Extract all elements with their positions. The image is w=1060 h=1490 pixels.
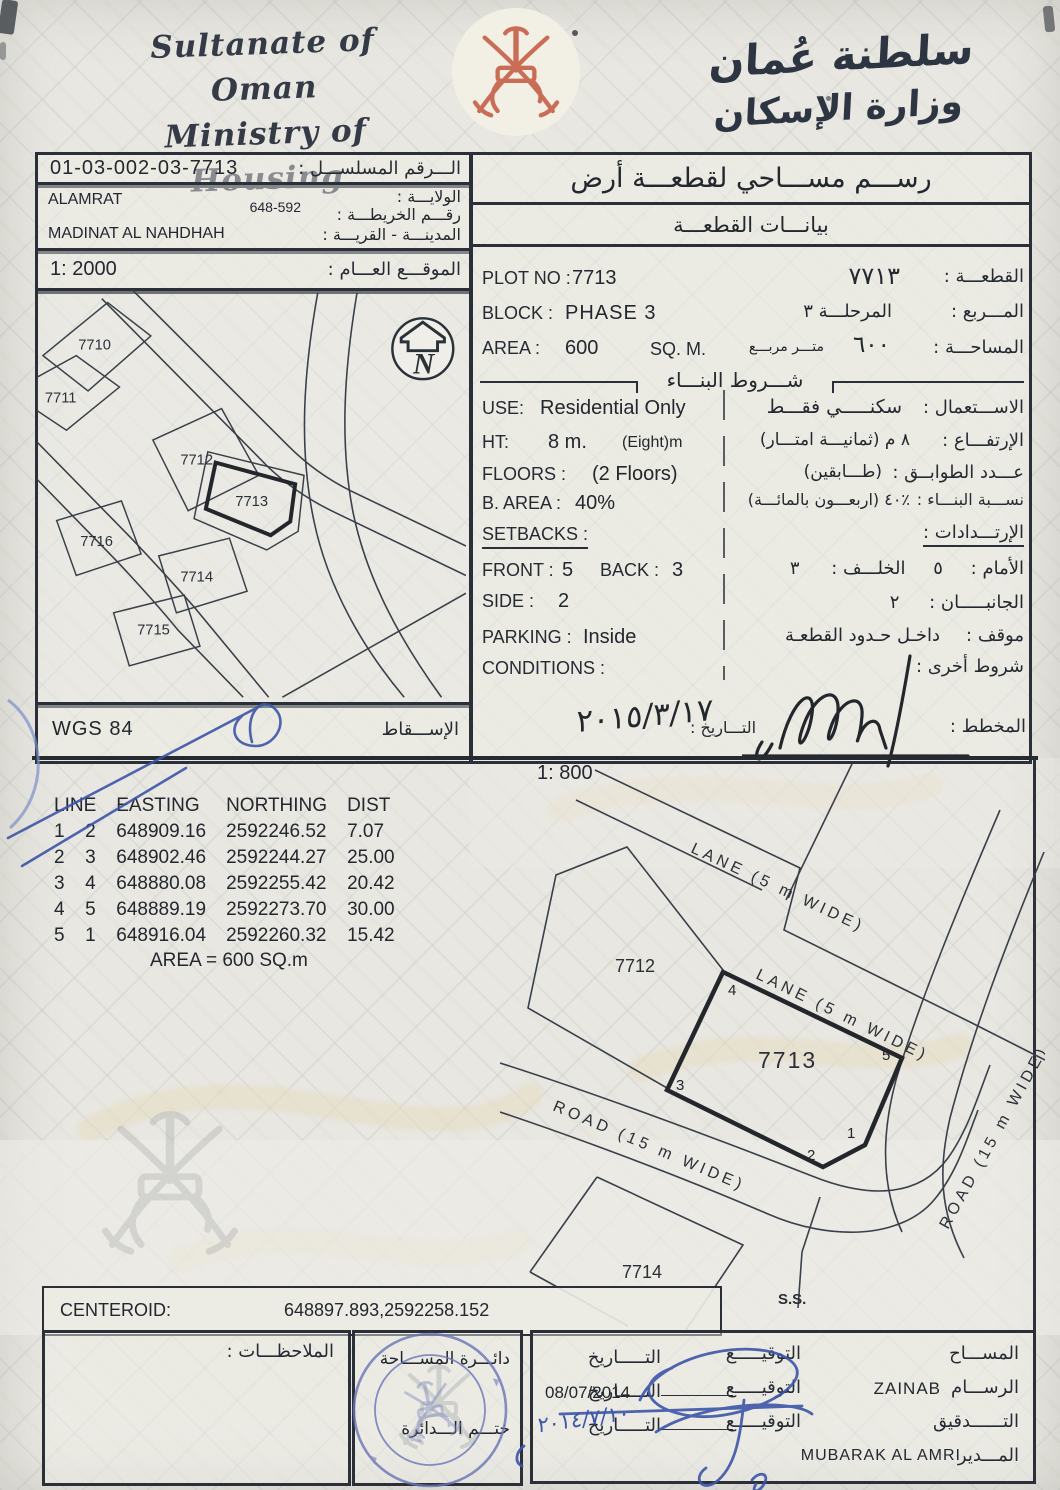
overview-plot-7715: 7715 (137, 622, 170, 638)
area-value: 600 (565, 337, 598, 360)
barea-label: B. AREA : (482, 493, 561, 514)
document-subtitle: بيانـــات القطعـــة (473, 205, 1029, 247)
overview-plot-7710: 7710 (78, 338, 111, 354)
barea-value: 40% (575, 492, 615, 515)
side-value-ar: ٢ (890, 592, 900, 613)
road-label-right: ROAD (15 m WIDE) (937, 1043, 1045, 1232)
serial-number-label: الـــرقم المسلســـل : (298, 158, 461, 179)
front-back-row-ar: الأمام : ٥ الخلـــف : ٣ (764, 558, 1024, 579)
floors-value-ar: (طـــابقين) (804, 462, 882, 482)
back-label-ar: الخلـــف : (831, 558, 905, 579)
setbacks-label: SETBACKS : (482, 524, 588, 549)
height-label: HT: (482, 432, 509, 453)
overview-plot-7714: 7714 (180, 569, 213, 585)
surveyor-sign-label: التوقيـــــع (726, 1343, 801, 1364)
map-number-value: 648-592 (250, 199, 301, 215)
map-number-label: رقـــم الخريطـــة : (337, 205, 461, 224)
overview-scale-label: الموقـــع العـــام : (328, 259, 461, 280)
side-label-ar: الجانبـــــان : (929, 592, 1024, 613)
audit-label: التــــــدقيق (933, 1411, 1019, 1432)
barea-value-ar: ٪٤٠ (اربعـــون بالمائـــة) (748, 490, 910, 509)
scan-artifact (0, 42, 6, 60)
coordinates-header-row: LINE EASTING NORTHING DIST (44, 793, 405, 819)
director-label: المـــدير (958, 1445, 1019, 1466)
centeroid-label: CENTEROID: (60, 1300, 171, 1321)
coord-row: 23648902.462592244.2725.00 (44, 845, 405, 871)
draftsman-sign-label: التوقيـــــع (726, 1377, 801, 1398)
floors-value: (2 Floors) (592, 463, 678, 486)
detail-site-plan: LANE (5 m WIDE) LANE (5 m WIDE) ROAD (15… (500, 760, 1045, 1330)
block-value: PHASE 3 (565, 302, 656, 325)
ss-label: S.S. (778, 1291, 806, 1308)
bracket-line-left (480, 381, 638, 383)
emblem-watermark (85, 1095, 255, 1265)
parking-label: PARKING : (482, 627, 572, 648)
draftsman-label: الرســـام (951, 1377, 1019, 1398)
signature-line (661, 1429, 733, 1430)
serial-number-value: 01-03-002-03-7713 (50, 157, 238, 180)
coordinates-table: LINE EASTING NORTHING DIST 12648909.1625… (44, 793, 405, 949)
scan-artifact (572, 30, 578, 36)
vertex-4: 4 (728, 982, 736, 999)
wilayat-label: الولايـــة : (397, 187, 461, 206)
overview-plot-7712: 7712 (180, 453, 213, 469)
area-label-ar: المساحـــة : (933, 337, 1024, 358)
coord-row: 45648889.192592273.7030.00 (44, 897, 405, 923)
ministry-header-arabic: سلطنة عُمان وزارة الإسكان (657, 18, 1022, 143)
notes-label: الملاحظـــات : (226, 1341, 334, 1362)
location-box: ALAMRAT الولايـــة : 648-592 رقـــم الخر… (35, 182, 472, 254)
height-value-ar: ٨ م (ثمانيـــة امتـــار) (760, 430, 910, 450)
lane-label-1: LANE (5 m WIDE) (688, 840, 867, 936)
detail-plot-7712: 7712 (615, 956, 655, 976)
setbacks-label-ar: الإرتـــدادات : (923, 522, 1024, 547)
overview-scale: 1: 2000 (50, 258, 117, 281)
overview-plot-7711: 7711 (45, 391, 77, 407)
north-arrow-icon: N (392, 318, 453, 380)
overview-map: 7710 7711 7712 7713 7716 7714 7715 N (37, 290, 466, 700)
planner-signature-scribble (742, 652, 982, 770)
front-value-ar: ٥ (933, 558, 943, 579)
area-label: AREA : (482, 338, 540, 359)
col-northing: NORTHING (216, 793, 337, 819)
town-label: المدينـــة - القريـــة : (322, 225, 461, 244)
coord-row: 34648880.082592255.4220.42 (44, 871, 405, 897)
front-label: FRONT : (482, 560, 554, 581)
use-value-ar: سكنـــــي فقـــط (767, 396, 902, 418)
draftsman-date-value: 08/07/2014 (545, 1383, 630, 1403)
projection-label: الإســـقاط (382, 719, 459, 740)
conditions-label: CONDITIONS : (482, 658, 605, 679)
front-value: 5 (562, 559, 573, 582)
surveyor-label: المســـاح (949, 1343, 1019, 1364)
town-value: MADINAT AL NAHDHAH (48, 225, 225, 243)
scan-artifact (826, 96, 831, 101)
surveyor-date-label: التـــــاريخ (588, 1347, 661, 1368)
plot-no-value: 7713 (572, 267, 617, 290)
block-value-ar: المرحلـــة ٣ (803, 301, 892, 322)
detail-labels: LANE (5 m WIDE) LANE (5 m WIDE) ROAD (15… (550, 840, 1045, 1308)
coord-row: 12648909.162592246.527.07 (44, 819, 405, 845)
detail-plot-7714: 7714 (622, 1262, 662, 1282)
use-value: Residential Only (540, 397, 686, 420)
side-row-ar: الجانبـــــان : ٢ (866, 592, 1024, 613)
plot-no-label-ar: القطعـــة : (944, 266, 1024, 287)
front-label-ar: الأمام : (971, 558, 1024, 579)
notes-box: الملاحظـــات : (42, 1330, 351, 1486)
height-label-ar: الإرتفـــاع : (942, 430, 1024, 451)
block-label-ar: المـــربع : (951, 301, 1024, 322)
north-letter: N (412, 348, 436, 380)
scanned-survey-document: Sultanate of Oman Ministry of Housing سل… (0, 0, 1060, 1490)
detail-plot-7713: 7713 (758, 1047, 817, 1073)
col-line: LINE (44, 793, 106, 819)
coord-row: 51648916.042592260.3215.42 (44, 923, 405, 949)
scan-artifact (0, 0, 18, 35)
plot-no-label: PLOT NO : (482, 268, 571, 289)
parking-label-ar: موقف : (966, 625, 1024, 646)
area-value-ar: ٦٠٠ (853, 332, 890, 358)
side-label: SIDE : (482, 591, 534, 612)
centeroid-value: 648897.893,2592258.152 (284, 1300, 489, 1321)
plot-no-value-ar: ٧٧١٣ (848, 262, 900, 290)
parking-value: Inside (583, 626, 636, 649)
signature-line (661, 1395, 733, 1396)
back-value: 3 (672, 559, 683, 582)
height-value: 8 m. (548, 431, 587, 454)
oman-national-emblem-icon (462, 14, 570, 126)
projection-box: WGS 84 الإســـقاط (35, 702, 472, 764)
column-separator (723, 390, 725, 680)
overview-plot-7713: 7713 (235, 494, 268, 510)
vertex-2: 2 (807, 1147, 815, 1164)
header-country-en: Sultanate of Oman (92, 16, 435, 118)
bracket-line-right (832, 381, 1024, 383)
back-value-ar: ٣ (790, 558, 800, 579)
side-value: 2 (558, 590, 569, 613)
area-note: AREA = 600 SQ.m (150, 950, 308, 972)
use-label: USE: (482, 398, 524, 419)
road-label-bottom: ROAD (15 m WIDE) (550, 1098, 747, 1195)
department-stamp (340, 1322, 530, 1490)
parking-value-ar: داخـل حـدود القطعـة (785, 625, 940, 646)
scan-artifact (1043, 6, 1056, 33)
wilayat-value: ALAMRAT (48, 191, 122, 209)
area-unit-ar: متـــر مربـــع (749, 339, 824, 355)
overview-plot-7716: 7716 (80, 534, 113, 550)
projection-value: WGS 84 (52, 718, 134, 741)
audit-sign-label: التوقيـــــع (726, 1411, 801, 1432)
area-unit: SQ. M. (650, 339, 706, 360)
document-title: رســـم مســـاحي لقطعـــة أرض (473, 155, 1029, 205)
vertex-5: 5 (882, 1047, 890, 1064)
director-name: MUBARAK AL AMRI (801, 1447, 961, 1465)
floors-label-ar: عـــدد الطوابــق : (892, 462, 1024, 483)
col-dist: DIST (337, 793, 405, 819)
back-label: BACK : (600, 560, 659, 581)
draftsman-name: ZAINAB (874, 1379, 941, 1399)
building-conditions-header: شـــروط البنـــاء (645, 368, 825, 392)
overview-parcels (37, 303, 304, 666)
col-easting: EASTING (106, 793, 216, 819)
signatures-box: المســـاح التوقيـــــع التـــــاريخ الرس… (530, 1330, 1036, 1484)
height-note: (Eight)m (622, 434, 682, 452)
vertex-3: 3 (676, 1077, 684, 1094)
use-label-ar: الاســـتعمال : (923, 397, 1024, 418)
vertex-1: 1 (847, 1125, 855, 1142)
block-label: BLOCK : (482, 303, 553, 324)
floors-label: FLOORS : (482, 464, 566, 485)
barea-label-ar: نســـبة البنـــاء : (917, 490, 1024, 509)
